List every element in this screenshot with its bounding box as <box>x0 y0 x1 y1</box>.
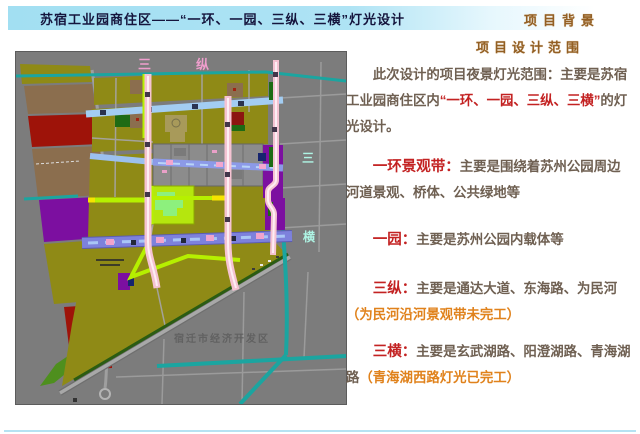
scope-item-vertical: 三纵：主要是通达大道、东海路、为民河（为民河沿河景观带未完工） <box>346 276 632 328</box>
scope-item-note: （为民河沿河景观带未完工） <box>346 307 520 322</box>
scope-item-term: 一园： <box>373 232 417 248</box>
map-label-three-vertical-2: 纵 <box>196 57 209 72</box>
map-canvas: 三 纵 三 横 宿迁市经济开发区 <box>16 52 346 404</box>
presentation-slide: 苏宿工业园商住区——“一环、一园、三纵、三横”灯光设计 项目背景 项目设计范围 <box>0 0 640 434</box>
map-label-three-vertical-1: 三 <box>138 57 151 72</box>
slide-title: 苏宿工业园商住区——“一环、一园、三纵、三横”灯光设计 <box>40 9 405 28</box>
map-label-three-horizontal-2: 横 <box>303 229 316 244</box>
scope-text-panel: 此次设计的项目夜景灯光范围：主要是苏宿工业园商住区内“一环、一园、三纵、三横”的… <box>346 62 632 391</box>
land-use-map: 三 纵 三 横 宿迁市经济开发区 <box>16 52 346 404</box>
scope-item-horizontal: 三横：主要是玄武湖路、阳澄湖路、青海湖路（青海湖西路灯光已完工） <box>346 339 632 391</box>
scope-item-term: 三横： <box>373 344 417 360</box>
scope-item-ring: 一环景观带：主要是围绕着苏州公园周边河道景观、桥体、公共绿地等 <box>346 154 632 206</box>
section-heading: 项目设计范围 <box>476 37 584 56</box>
map-park <box>152 186 194 224</box>
scope-item-term: 一环景观带： <box>373 159 460 175</box>
bottom-rule <box>4 430 636 432</box>
scope-item-desc: 主要是苏州公园内载体等 <box>416 232 563 247</box>
scope-item-desc: 主要是通达大道、东海路、为民河 <box>416 281 617 296</box>
scope-item-note: （青海湖西路灯光已完工） <box>359 370 520 385</box>
intro-paragraph: 此次设计的项目夜景灯光范围：主要是苏宿工业园商住区内“一环、一园、三纵、三横”的… <box>346 62 632 140</box>
scope-item-park: 一园：主要是苏州公园内载体等 <box>346 227 632 253</box>
map-label-three-horizontal-1: 三 <box>302 151 314 165</box>
district-label: 宿迁市经济开发区 <box>174 332 270 345</box>
scope-item-term: 三纵： <box>373 281 417 297</box>
corner-label: 项目背景 <box>524 10 600 29</box>
intro-highlight: “一环、一园、三纵、三横” <box>440 93 601 108</box>
